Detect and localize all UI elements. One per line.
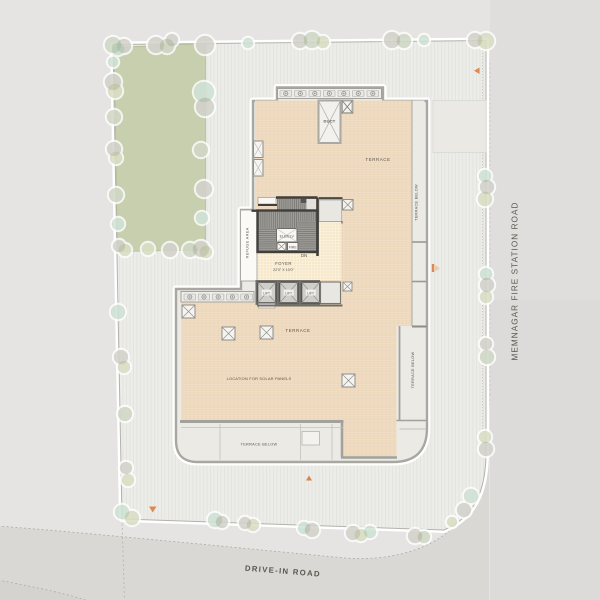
svg-text:LOCATION FOR SOLAR PANELS: LOCATION FOR SOLAR PANELS xyxy=(227,376,292,381)
svg-text:TERRACE BELOW: TERRACE BELOW xyxy=(411,351,415,388)
svg-text:FIRE: FIRE xyxy=(289,245,297,249)
svg-text:DUCT: DUCT xyxy=(324,119,336,124)
svg-text:LIFT: LIFT xyxy=(307,291,314,295)
svg-text:LIFT: LIFT xyxy=(285,291,292,295)
svg-text:TERRACE: TERRACE xyxy=(285,328,310,333)
svg-text:TERRACE BELOW: TERRACE BELOW xyxy=(241,443,278,447)
svg-text:DN: DN xyxy=(301,253,307,258)
svg-text:FOYER: FOYER xyxy=(275,261,292,266)
svg-text:MEMNAGAR FIRE STATION ROAD: MEMNAGAR FIRE STATION ROAD xyxy=(511,202,520,361)
svg-text:TERRACE: TERRACE xyxy=(365,157,390,162)
svg-text:LIFT: LIFT xyxy=(263,291,270,295)
svg-text:REFUGE AREA: REFUGE AREA xyxy=(245,227,250,258)
svg-text:ELE/ELV: ELE/ELV xyxy=(280,234,295,238)
svg-text:TERRACE BELOW: TERRACE BELOW xyxy=(415,184,419,221)
svg-text:22'0" X 10'0": 22'0" X 10'0" xyxy=(273,268,295,272)
